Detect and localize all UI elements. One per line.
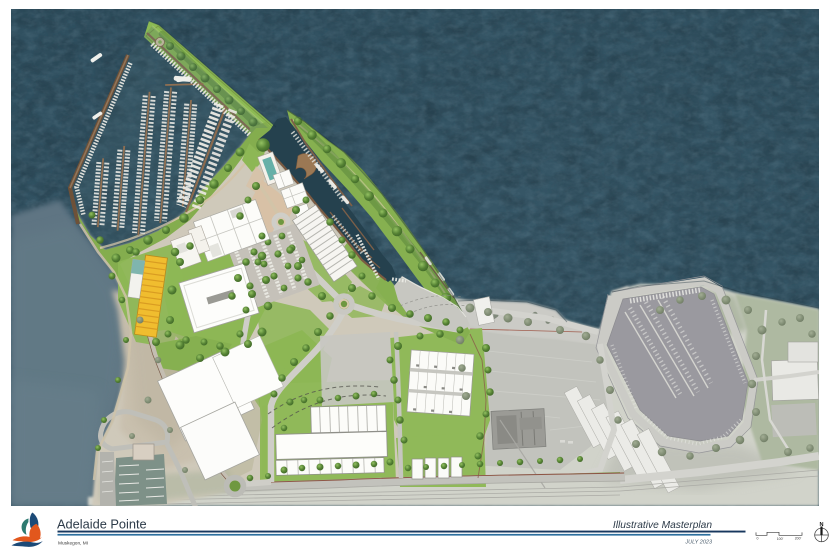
svg-text:200': 200' bbox=[795, 537, 802, 541]
svg-text:Illustrative Masterplan: Illustrative Masterplan bbox=[613, 520, 712, 531]
svg-text:Adelaide Pointe: Adelaide Pointe bbox=[57, 517, 147, 532]
svg-text:Muskegon, MI: Muskegon, MI bbox=[58, 541, 88, 547]
svg-text:N: N bbox=[819, 522, 823, 528]
svg-text:0: 0 bbox=[757, 537, 759, 541]
svg-text:100': 100' bbox=[777, 537, 784, 541]
svg-text:JULY 2023: JULY 2023 bbox=[684, 540, 713, 546]
